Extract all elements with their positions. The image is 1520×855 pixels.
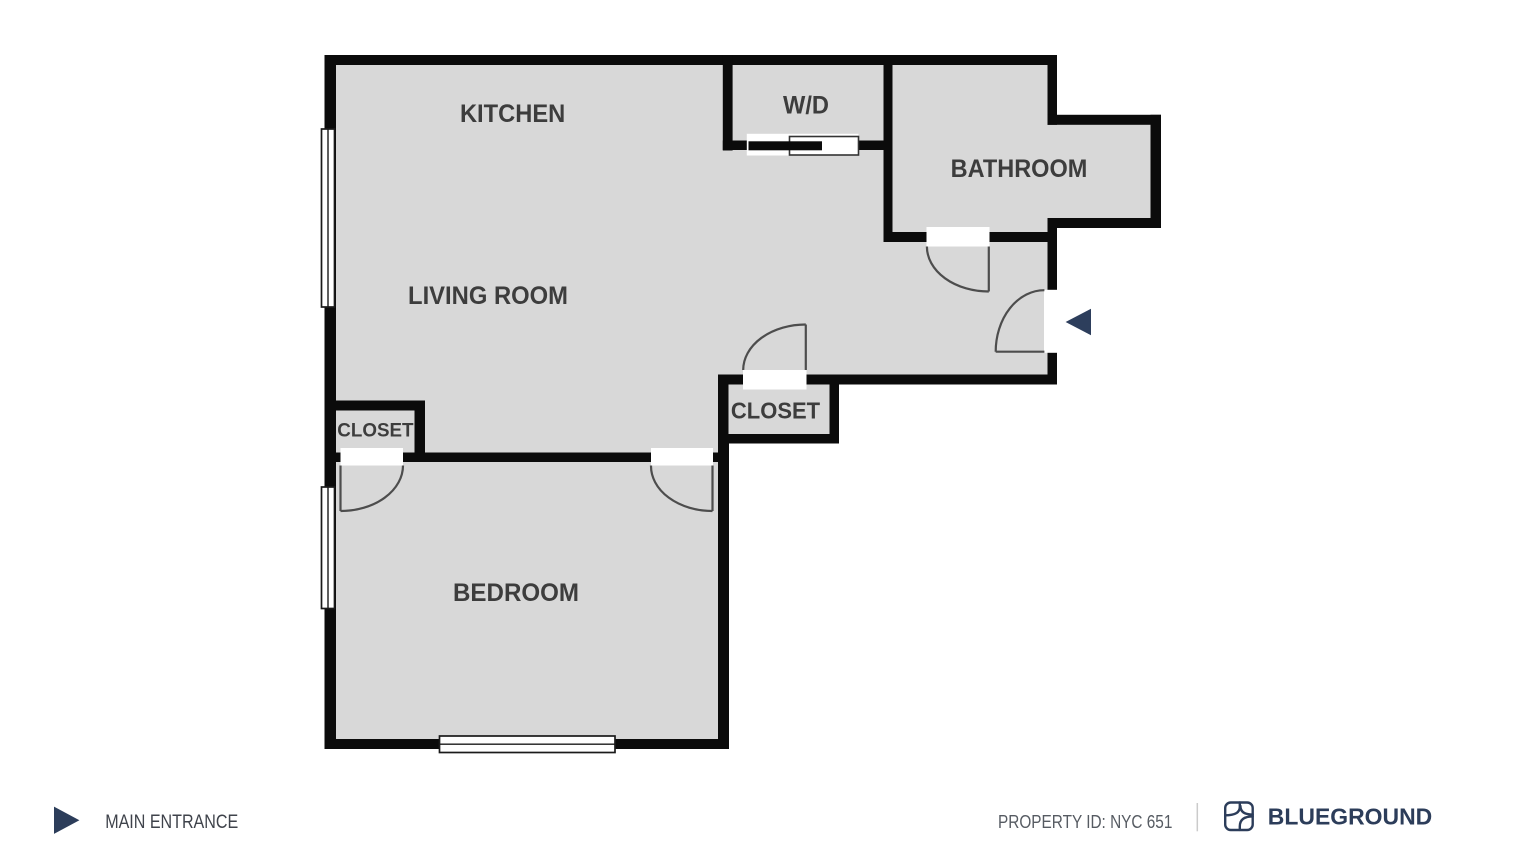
svg-text:BLUEGROUND: BLUEGROUND — [1268, 804, 1432, 830]
svg-text:PROPERTY ID: NYC 651: PROPERTY ID: NYC 651 — [998, 811, 1172, 832]
svg-text:MAIN ENTRANCE: MAIN ENTRANCE — [105, 812, 238, 833]
svg-text:W/D: W/D — [783, 92, 829, 120]
svg-text:CLOSET: CLOSET — [337, 420, 413, 442]
svg-text:LIVING ROOM: LIVING ROOM — [408, 282, 568, 310]
svg-text:BATHROOM: BATHROOM — [951, 155, 1088, 183]
svg-text:BEDROOM: BEDROOM — [453, 579, 579, 607]
svg-text:KITCHEN: KITCHEN — [460, 100, 565, 128]
svg-text:CLOSET: CLOSET — [731, 398, 820, 424]
